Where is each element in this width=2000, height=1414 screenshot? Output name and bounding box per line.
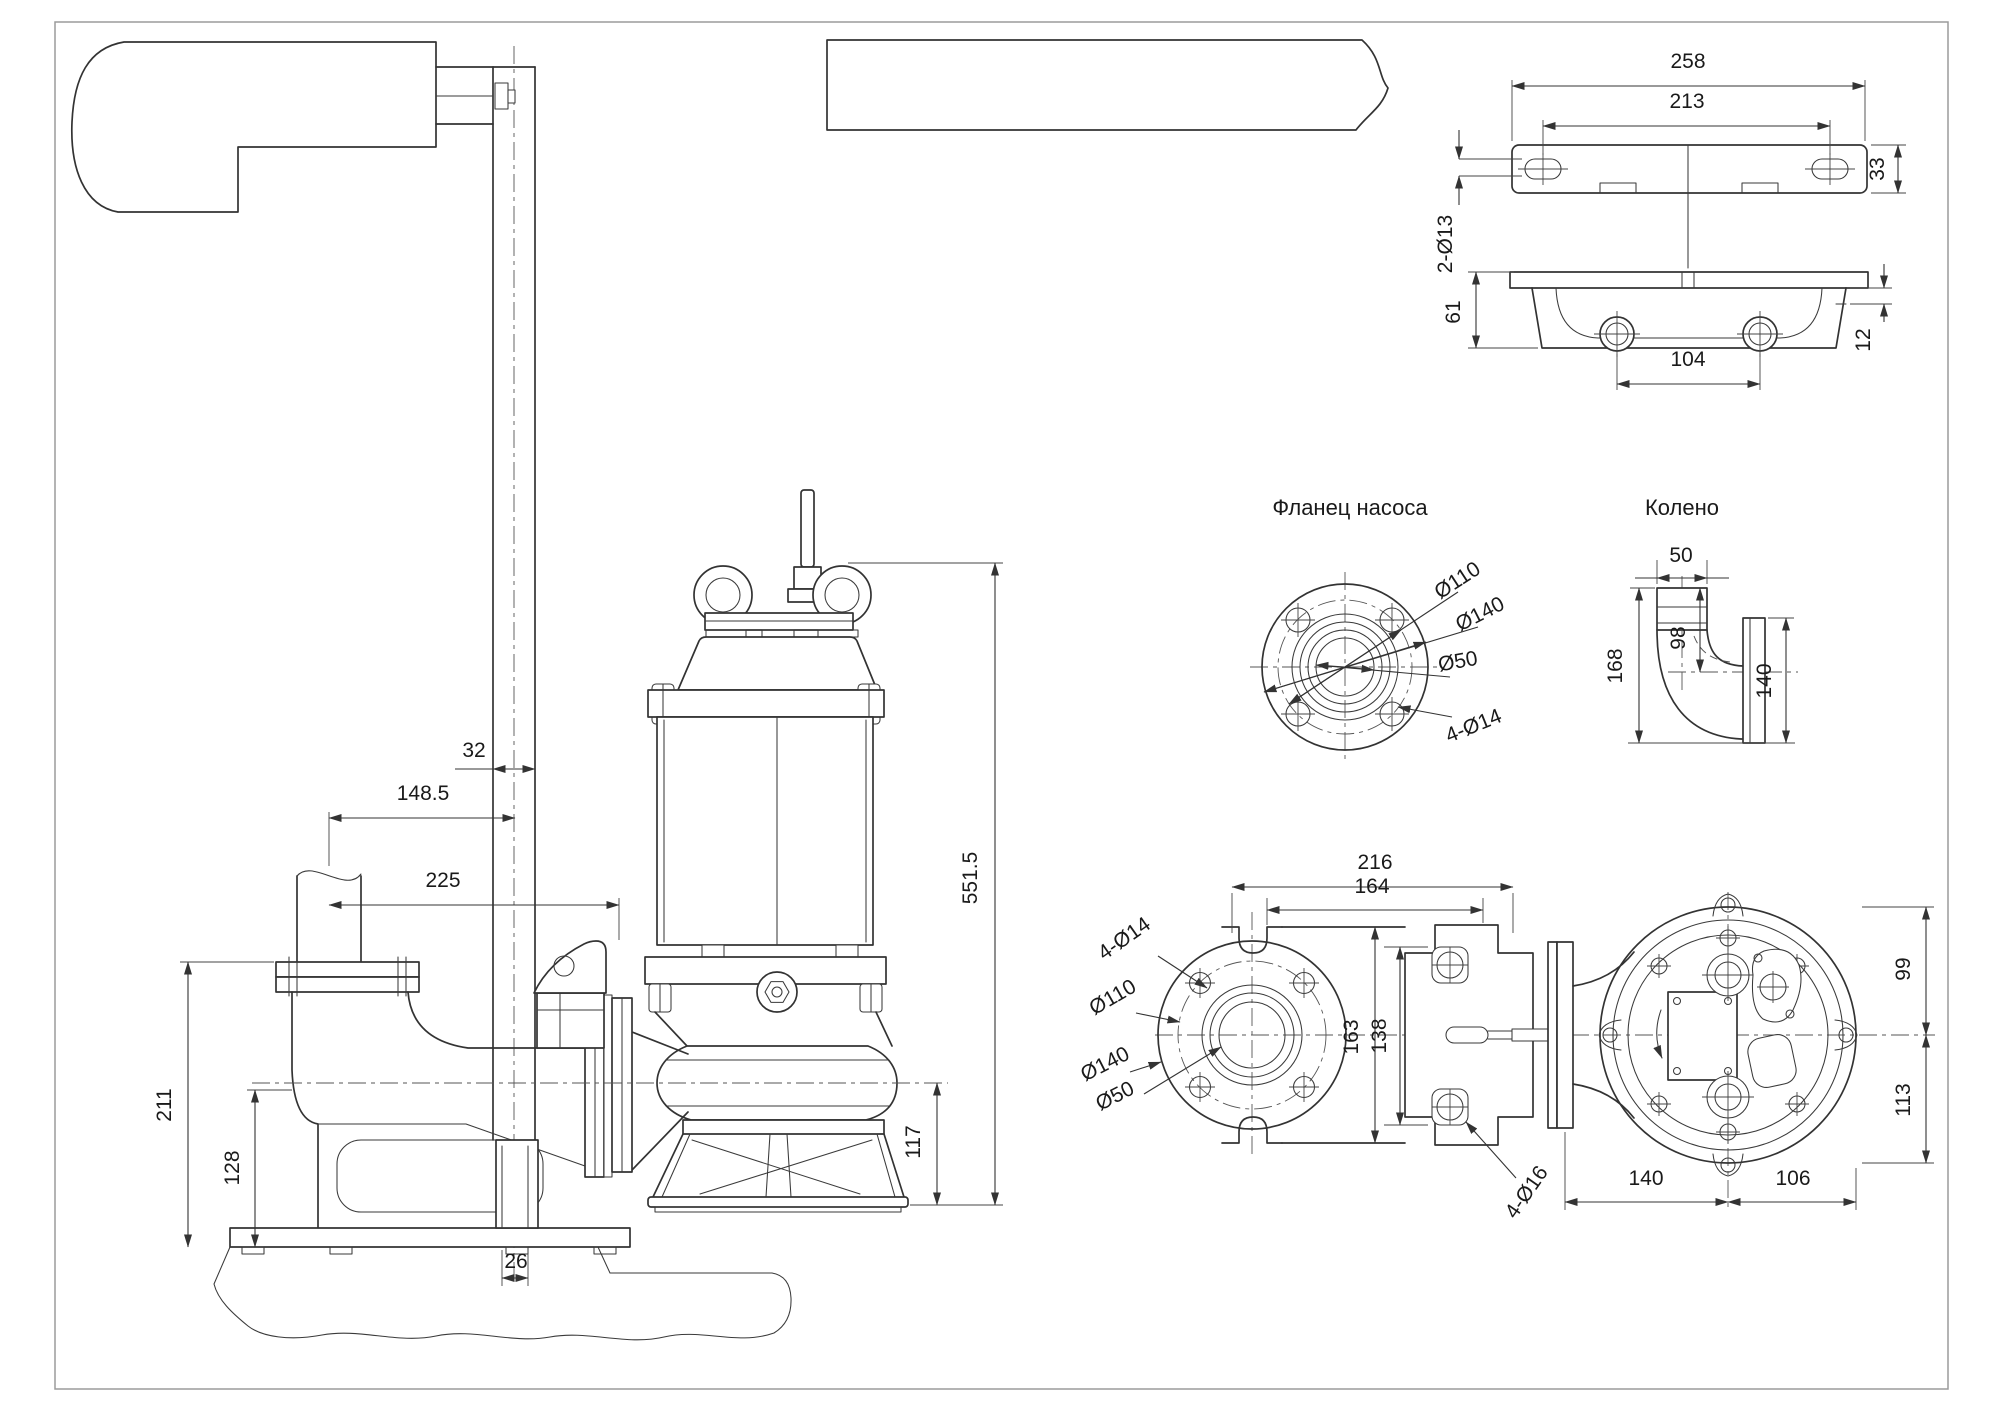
dim-bracket-overall: 258 (1670, 50, 1705, 73)
dim-top-adapter-h: 138 (1368, 1018, 1391, 1053)
dim-top-flange-h: 163 (1340, 1019, 1363, 1054)
upper-bracket-views: 258 213 33 2-Ø13 61 (1434, 50, 1906, 390)
dim-base-height: 128 (221, 1150, 244, 1185)
dim-top-back: 113 (1892, 1083, 1915, 1116)
pedestal-elbow (230, 871, 630, 1254)
dim-top-right: 106 (1775, 1167, 1810, 1190)
power-cable (801, 490, 814, 567)
pump-flange-detail: Фланец насоса Ø110 Ø140 Ø50 4-Ø14 (1250, 495, 1508, 764)
casing-bolt (757, 972, 797, 1012)
guide-rail (493, 46, 535, 1284)
motor-top-cover (678, 637, 877, 690)
floor-section (214, 1247, 791, 1340)
dim-bracket-plate: 12 (1852, 328, 1875, 351)
label-top-holes: 4-Ø14 (1094, 912, 1155, 965)
dim-outlet-height: 211 (153, 1088, 176, 1121)
guide-pin (1446, 1027, 1488, 1043)
clamp-band-upper (648, 690, 884, 717)
dim-top-flange-adapter: 164 (1354, 875, 1389, 898)
label-flange-outer: Ø140 (1452, 592, 1508, 636)
label-adapter-holes: 4-Ø16 (1501, 1162, 1553, 1223)
dim-elbow-height: 168 (1604, 648, 1627, 683)
dim-bracket-depth: 33 (1866, 157, 1889, 180)
dim-rail-slot: 26 (504, 1250, 527, 1273)
side-view-dimensions: 32 148.5 225 211 128 26 117 551.5 (153, 563, 1003, 1286)
bracket-bolt (495, 83, 508, 109)
dim-elbow-axis: 98 (1667, 626, 1690, 649)
wall-section-right (827, 40, 1388, 130)
rotation-arrow (1657, 1010, 1662, 1058)
dim-pipe-to-flange: 225 (425, 869, 460, 892)
label-flange-holes: 4-Ø14 (1442, 704, 1505, 747)
dim-top-left: 140 (1628, 1167, 1663, 1190)
motor-housing (657, 717, 873, 945)
dim-rail-width: 32 (462, 739, 485, 762)
cover-pocket (1745, 1032, 1798, 1090)
dim-bracket-bosses: 104 (1670, 348, 1705, 371)
wall-section-left (72, 42, 436, 212)
dim-pump-height: 551.5 (959, 852, 982, 905)
rail-top-bracket (436, 67, 515, 124)
label-flange-bolt-circle: Ø110 (1430, 557, 1484, 603)
sheet-border (55, 22, 1948, 1389)
pump-top-view: 216 164 163 138 99 113 140 106 4 (1077, 851, 1935, 1223)
dim-top-front: 99 (1892, 957, 1915, 980)
motor-frame-plan (1668, 992, 1737, 1080)
dim-bracket-slots: 213 (1669, 90, 1704, 113)
label-top-bore: Ø50 (1092, 1077, 1138, 1116)
dim-axis-to-base: 117 (902, 1125, 925, 1158)
label-top-bolt-circle: Ø110 (1085, 975, 1140, 1020)
side-elevation-view: 32 148.5 225 211 128 26 117 551.5 (72, 40, 1388, 1340)
guide-claw (534, 941, 606, 1048)
elbow-title: Колено (1645, 495, 1719, 520)
base-plate (230, 1228, 630, 1247)
dim-elbow-flange: 140 (1753, 663, 1776, 698)
dim-top-overall: 216 (1357, 851, 1392, 874)
bracket-plate (1510, 272, 1868, 288)
drawing-page: 32 148.5 225 211 128 26 117 551.5 (0, 0, 2000, 1414)
pump-flange-title: Фланец насоса (1272, 495, 1428, 520)
suction-stand (648, 1120, 908, 1212)
dim-elbow-inlet: 50 (1669, 544, 1692, 567)
pipe-break-line (297, 871, 361, 880)
elbow-detail: Колено 50 98 168 140 (1604, 495, 1798, 743)
submersible-pump (612, 490, 908, 1212)
label-flange-bore: Ø50 (1436, 647, 1479, 677)
dim-pipe-to-rail: 148.5 (397, 782, 450, 805)
pump-installation-drawing: 32 148.5 225 211 128 26 117 551.5 (0, 0, 2000, 1414)
dim-bracket-body-height: 61 (1442, 300, 1465, 323)
dim-bracket-slot-holes: 2-Ø13 (1434, 215, 1457, 273)
